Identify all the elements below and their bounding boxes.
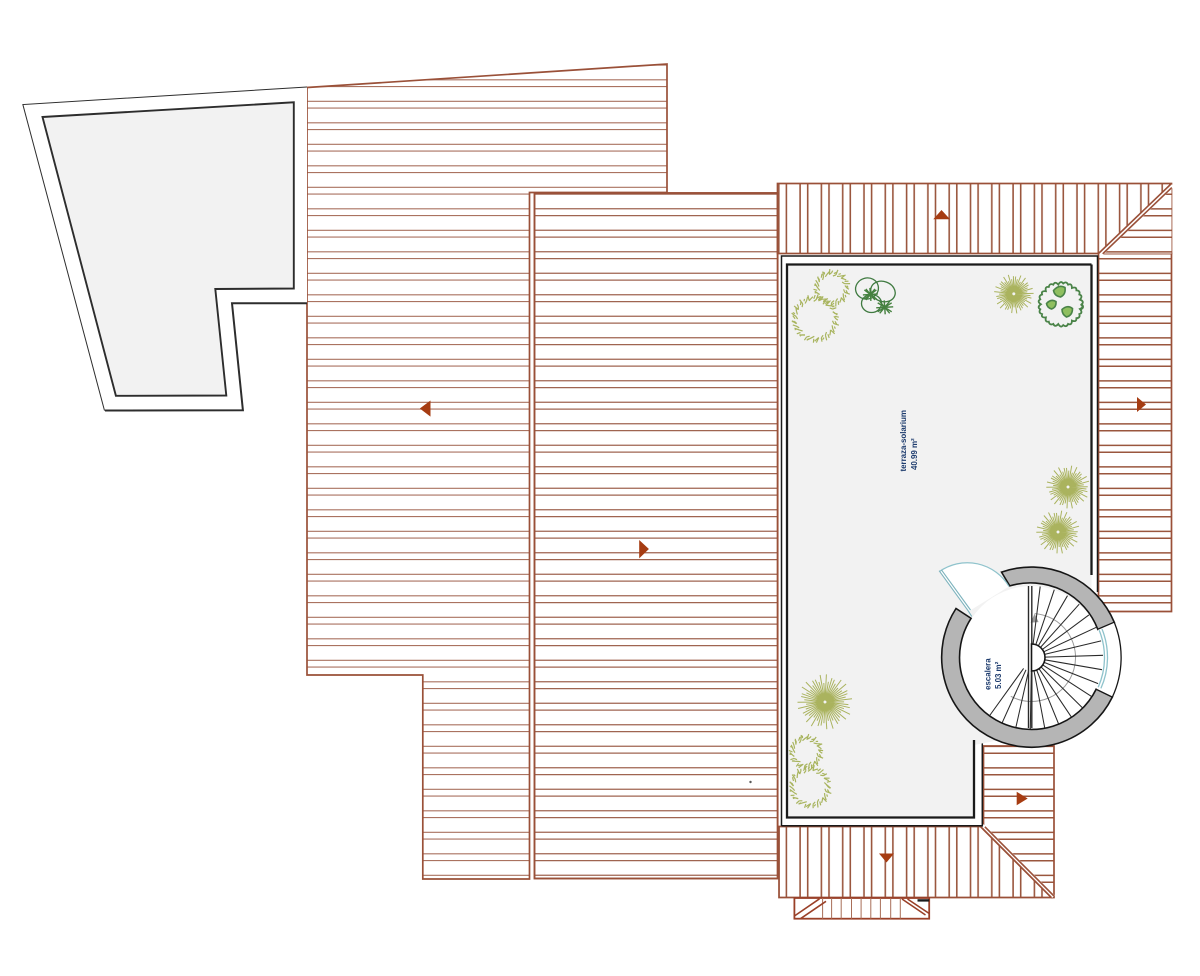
svg-text:escalera: escalera <box>984 658 993 690</box>
svg-text:5.03 m²: 5.03 m² <box>994 661 1003 689</box>
svg-text:terraza-solarium: terraza-solarium <box>899 410 908 471</box>
svg-text:40.99 m²: 40.99 m² <box>910 438 919 470</box>
